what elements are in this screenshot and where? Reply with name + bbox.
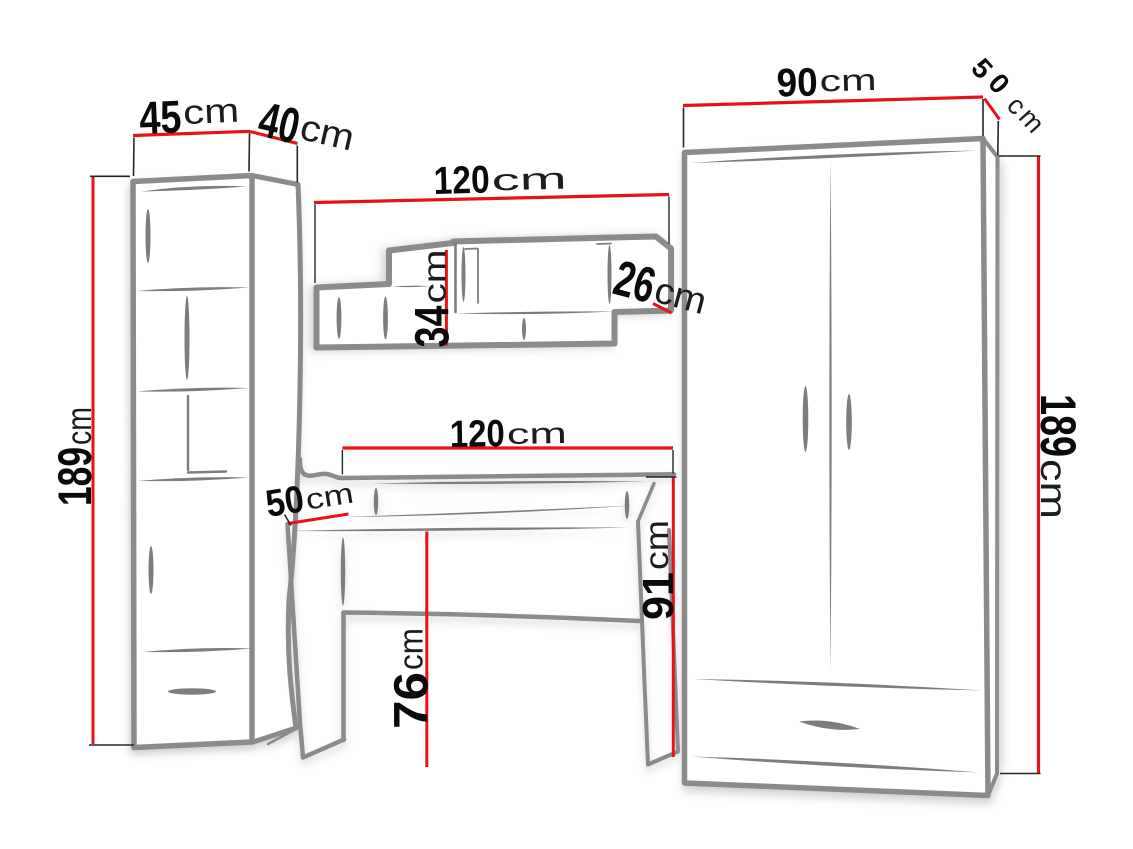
svg-text:120cm: 120cm	[433, 157, 567, 203]
svg-text:120cm: 120cm	[449, 412, 567, 456]
